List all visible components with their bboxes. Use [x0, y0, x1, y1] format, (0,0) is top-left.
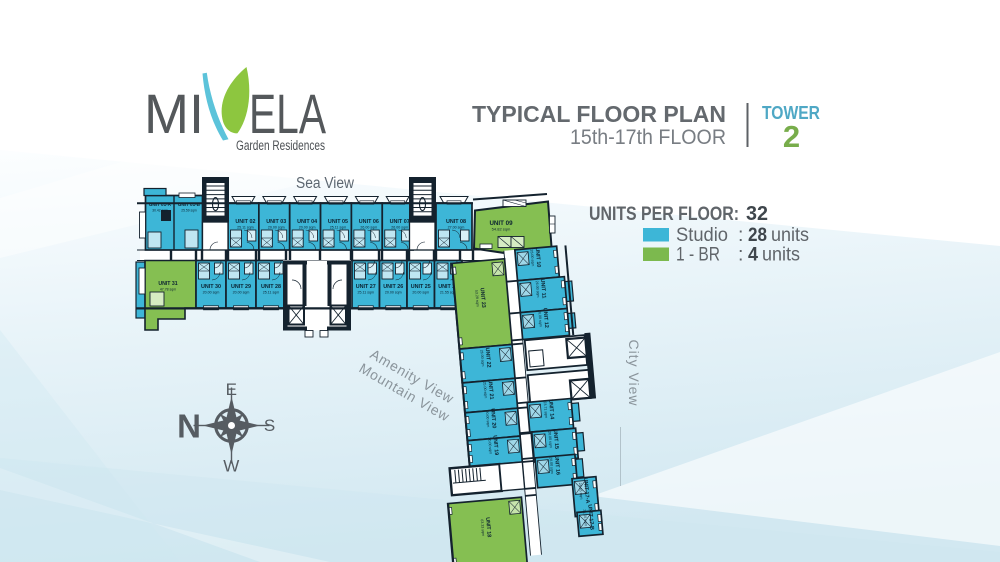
svg-text:26.00 sqm: 26.00 sqm: [360, 225, 377, 229]
svg-text:Sea View: Sea View: [296, 175, 355, 192]
svg-text::: :: [738, 244, 743, 266]
svg-text:47.78 sqm: 47.78 sqm: [160, 287, 176, 291]
svg-text:ELA: ELA: [249, 82, 326, 145]
svg-text:TYPICAL FLOOR PLAN: TYPICAL FLOOR PLAN: [472, 101, 726, 127]
svg-text:15th-17th FLOOR: 15th-17th FLOOR: [570, 126, 726, 149]
svg-text:2: 2: [783, 119, 800, 154]
svg-text:UNIT 26: UNIT 26: [383, 284, 403, 290]
svg-text:25.11 sqm: 25.11 sqm: [237, 225, 254, 229]
svg-text:UNIT 08: UNIT 08: [446, 219, 466, 225]
svg-text:UNIT 27: UNIT 27: [356, 284, 376, 290]
svg-text:units: units: [762, 244, 800, 266]
svg-text:27.00 sqm: 27.00 sqm: [448, 225, 465, 229]
svg-text:20.00 sqm: 20.00 sqm: [268, 225, 285, 229]
svg-text:25.11 sqm: 25.11 sqm: [357, 290, 374, 294]
svg-text:UNIT 03: UNIT 03: [266, 219, 286, 225]
svg-text:54.82 sqm: 54.82 sqm: [492, 226, 511, 231]
svg-text:UNIT 07: UNIT 07: [390, 219, 410, 225]
svg-text:City View: City View: [626, 339, 642, 406]
svg-text:UNIT 04: UNIT 04: [297, 219, 317, 225]
svg-text:20.00 sqm: 20.00 sqm: [385, 290, 402, 294]
svg-text:UNIT 02: UNIT 02: [235, 219, 255, 225]
svg-text:MI: MI: [144, 82, 204, 145]
svg-text:UNIT 31: UNIT 31: [158, 281, 177, 287]
svg-text:20.00 sqm: 20.00 sqm: [203, 290, 220, 294]
svg-text:25.59 sqm: 25.59 sqm: [181, 208, 197, 212]
svg-text:UNITS PER FLOOR:: UNITS PER FLOOR:: [589, 203, 739, 225]
svg-text:UNIT 29: UNIT 29: [231, 284, 251, 290]
svg-text:30.42 sqm: 30.42 sqm: [152, 208, 168, 212]
svg-text:25.11 sqm: 25.11 sqm: [263, 290, 280, 294]
svg-text:26.00 sqm: 26.00 sqm: [391, 225, 408, 229]
svg-text:E: E: [226, 380, 237, 399]
svg-text:UNIT 06: UNIT 06: [359, 219, 379, 225]
svg-text:32: 32: [746, 203, 768, 225]
svg-text:1 - BR: 1 - BR: [676, 244, 720, 266]
svg-text:20.00 sqm: 20.00 sqm: [412, 290, 429, 294]
svg-text:N: N: [177, 408, 201, 445]
svg-text:20.00 sqm: 20.00 sqm: [299, 225, 316, 229]
svg-text:4: 4: [748, 244, 758, 266]
svg-text:UNIT 30: UNIT 30: [201, 284, 221, 290]
svg-text:20.00 sqm: 20.00 sqm: [233, 290, 250, 294]
svg-text:S: S: [264, 416, 275, 435]
svg-text:W: W: [223, 457, 239, 476]
svg-text:Garden Residences: Garden Residences: [236, 138, 325, 153]
svg-text:UNIT 25: UNIT 25: [411, 284, 431, 290]
svg-text:UNIT 05: UNIT 05: [328, 219, 348, 225]
svg-text:UNIT 28: UNIT 28: [261, 284, 281, 290]
svg-text:25.11 sqm: 25.11 sqm: [330, 225, 347, 229]
